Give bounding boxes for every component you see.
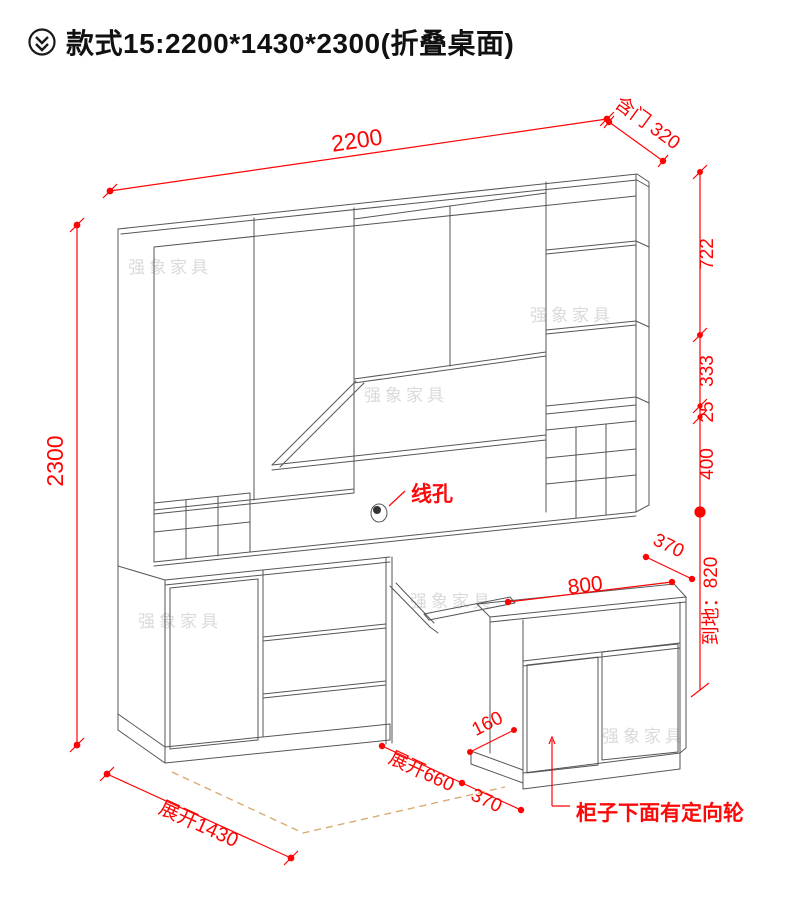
dim-seg-333-label: 333 bbox=[697, 355, 718, 387]
page-title-bar: 款式15:2200*1430*2300(折叠桌面) bbox=[26, 22, 514, 62]
side-cabinet-lines bbox=[471, 584, 686, 789]
dimension-base-step: 160 bbox=[467, 708, 517, 755]
dimension-right-chain: 722 333 25 400 到地：820 bbox=[691, 165, 722, 697]
watermark-text: 强象家具 bbox=[138, 612, 222, 631]
furniture-spec-page: 款式15:2200*1430*2300(折叠桌面) 强象家具 强象家具 强象家具… bbox=[0, 0, 790, 920]
dim-seg-25-label: 25 bbox=[697, 401, 718, 422]
dimension-door-depth: 含门 320 bbox=[604, 92, 684, 167]
dimension-left-height: 2300 bbox=[42, 218, 84, 752]
dim-to-floor-label: 到地：820 bbox=[700, 557, 722, 646]
dimension-unfold-gap: 370 bbox=[462, 783, 524, 817]
dim-top-width-label: 2200 bbox=[330, 124, 384, 157]
annotation-caster-note: 柜子下面有定向轮 bbox=[549, 737, 744, 825]
watermark-text: 强象家具 bbox=[364, 386, 448, 405]
dim-left-height-label: 2300 bbox=[42, 435, 68, 486]
dim-upper-depth-label: 370 bbox=[650, 530, 688, 563]
dim-door-depth-label: 含门 320 bbox=[611, 92, 685, 154]
dim-seg-722-label: 722 bbox=[697, 238, 718, 270]
dim-side-cabinet-width-label: 800 bbox=[566, 572, 604, 599]
dim-unfold-gap-label: 370 bbox=[468, 785, 506, 817]
dimension-top-width: 2200 bbox=[103, 112, 614, 198]
caster-note-label: 柜子下面有定向轮 bbox=[576, 801, 744, 825]
dimension-upper-depth: 370 bbox=[643, 530, 695, 583]
wire-hole bbox=[371, 504, 387, 522]
page-title: 款式15:2200*1430*2300(折叠桌面) bbox=[66, 22, 514, 62]
folding-desk-lines bbox=[390, 583, 515, 633]
watermark-text: 强象家具 bbox=[128, 258, 212, 277]
wire-hole-label: 线孔 bbox=[411, 482, 453, 506]
dim-unfold-width-label: 展开1430 bbox=[155, 797, 241, 852]
furniture-dimension-drawing: 强象家具 强象家具 强象家具 强象家具 强象家具 强象家具 bbox=[0, 70, 790, 920]
watermark-text: 强象家具 bbox=[602, 727, 686, 746]
lower-cabinet-lines bbox=[118, 557, 392, 763]
dimension-unfold-width: 展开1430 bbox=[100, 767, 298, 865]
dim-base-step-label: 160 bbox=[469, 708, 507, 741]
annotation-wire-hole: 线孔 bbox=[389, 482, 453, 506]
dim-unfold-depth-label: 展开660 bbox=[385, 748, 457, 796]
dimension-unfold-depth: 展开660 bbox=[379, 743, 465, 796]
dim-seg-400-label: 400 bbox=[697, 448, 718, 480]
circled-double-chevron-down-icon bbox=[26, 26, 58, 58]
watermark-text: 强象家具 bbox=[530, 306, 614, 325]
